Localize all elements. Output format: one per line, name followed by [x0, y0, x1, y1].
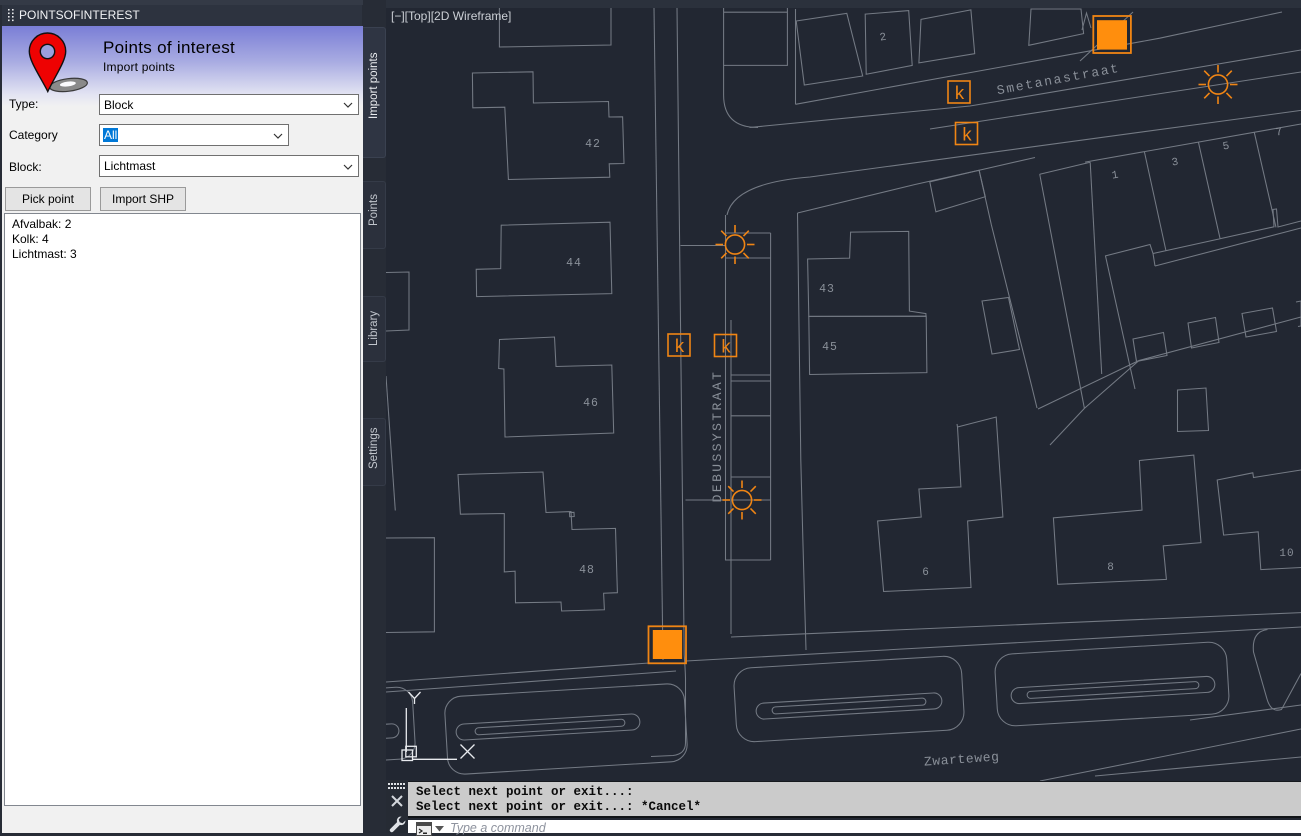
svg-text:Smetanastraat: Smetanastraat: [996, 61, 1121, 98]
svg-text:43: 43: [819, 283, 835, 296]
svg-text:7: 7: [1275, 126, 1285, 139]
svg-text:8: 8: [1107, 562, 1115, 574]
svg-text:DEBUSSYSTRAAT: DEBUSSYSTRAAT: [710, 370, 725, 503]
svg-text:k: k: [720, 338, 731, 359]
svg-text:46: 46: [583, 397, 599, 410]
svg-text:45: 45: [822, 341, 838, 354]
svg-text:42: 42: [585, 138, 601, 151]
svg-text:48: 48: [579, 564, 595, 577]
svg-text:44: 44: [566, 257, 582, 270]
svg-text:k: k: [954, 84, 965, 105]
svg-text:Zwarteweg: Zwarteweg: [924, 749, 1000, 769]
svg-text:3: 3: [1171, 156, 1181, 169]
svg-text:5: 5: [1222, 140, 1232, 153]
svg-text:1: 1: [1111, 169, 1121, 182]
svg-text:6: 6: [922, 567, 930, 579]
svg-text:2: 2: [879, 31, 889, 44]
svg-text:k: k: [674, 337, 685, 358]
svg-text:k: k: [961, 126, 972, 147]
svg-text:10: 10: [1279, 548, 1294, 560]
